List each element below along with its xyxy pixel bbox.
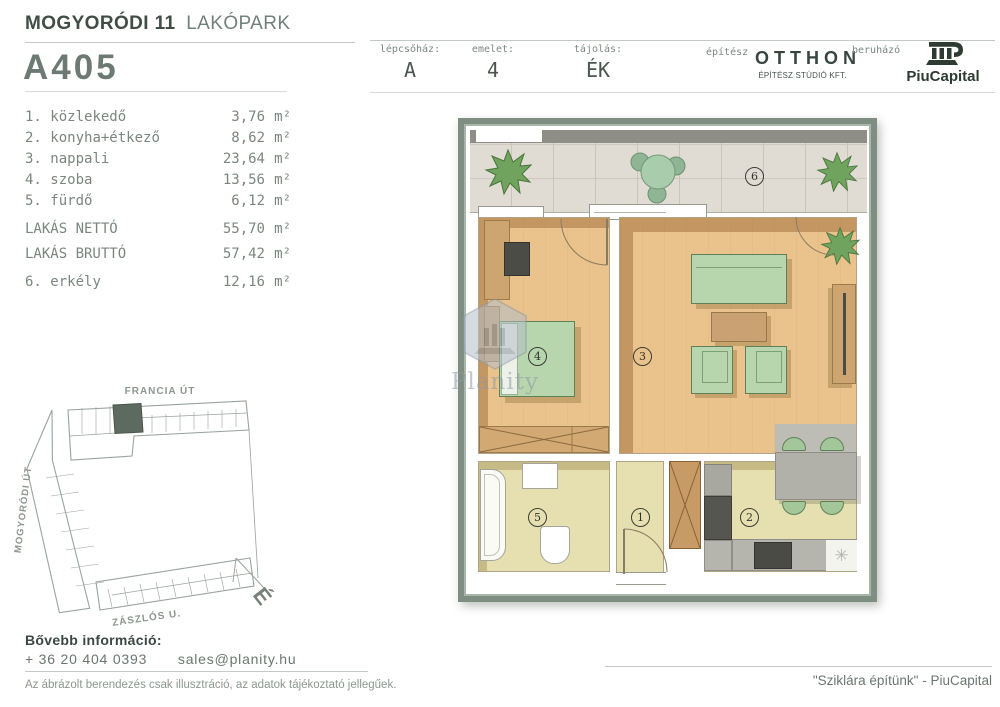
divider xyxy=(25,671,368,672)
sink xyxy=(522,463,558,489)
room-num: 3. xyxy=(25,151,42,167)
developer-label: beruházó xyxy=(852,45,900,56)
floor-value: 4 xyxy=(458,58,528,82)
contact-line: + 36 20 404 0393 sales@planity.hu xyxy=(25,651,296,667)
net-area-row: LAKÁS NETTÓ 55,70 m² xyxy=(25,219,291,240)
staircase-label: lépcsőház: xyxy=(375,44,445,55)
plant-icon xyxy=(484,148,532,196)
info-staircase: lépcsőház: A xyxy=(375,44,445,82)
architect-label: építész xyxy=(706,47,748,58)
room-unit: m² xyxy=(265,128,291,149)
room-badge-kitchen: 2 xyxy=(740,508,759,527)
room-area: 23,64 xyxy=(209,149,265,170)
wardrobe xyxy=(479,426,609,453)
plant-icon xyxy=(820,226,860,266)
site-plan: FRANCIA ÚT MOGYORÓDI ÚT ZÁSZLÓS U. É xyxy=(12,380,290,628)
architect-name: OTTHON xyxy=(755,48,850,69)
room-name: szoba xyxy=(50,172,92,188)
project-type: LAKÓPARK xyxy=(186,13,290,34)
watermark-text: Planity xyxy=(440,369,550,395)
street-label-top: FRANCIA ÚT xyxy=(125,384,196,397)
room-row: 4. szoba 13,56 m² xyxy=(25,170,291,191)
stove xyxy=(754,542,792,569)
room-badge-hall: 1 xyxy=(631,508,650,527)
balcony-name: erkély xyxy=(50,274,101,290)
room-unit: m² xyxy=(265,191,291,212)
divider xyxy=(25,91,287,92)
divider xyxy=(605,666,992,667)
room-name: közlekedő xyxy=(50,109,126,125)
bathtub xyxy=(480,469,506,561)
architect-subtitle: ÉPÍTÉSZ STÚDIÓ KFT. xyxy=(750,71,855,80)
contact-phone: + 36 20 404 0393 xyxy=(25,651,147,667)
planity-logo-icon xyxy=(462,298,528,370)
balcony-unit: m² xyxy=(265,272,291,293)
staircase-value: A xyxy=(375,58,445,82)
room-row: 3. nappali 23,64 m² xyxy=(25,149,291,170)
room-row: 2. konyha+étkező 8,62 m² xyxy=(25,128,291,149)
highlighted-unit xyxy=(113,404,143,434)
gross-area: 57,42 xyxy=(209,244,265,265)
divider xyxy=(25,42,355,43)
street-label-left: MOGYORÓDI ÚT xyxy=(12,465,34,553)
net-label: LAKÁS NETTÓ xyxy=(25,219,209,240)
balcony-railing-gap xyxy=(476,128,542,142)
company-slogan: "Sziklára építünk" - PiuCapital xyxy=(605,673,992,688)
divider xyxy=(370,92,995,93)
net-unit: m² xyxy=(265,219,291,240)
tv-icon xyxy=(504,242,530,276)
kitchen-counter xyxy=(704,464,732,496)
sofa xyxy=(691,254,787,304)
gross-unit: m² xyxy=(265,244,291,265)
contact-email: sales@planity.hu xyxy=(178,651,297,667)
room-num: 1. xyxy=(25,109,42,125)
toilet xyxy=(540,526,570,564)
room-row: 1. közlekedő 3,76 m² xyxy=(25,107,291,128)
net-area: 55,70 xyxy=(209,219,265,240)
room-area: 13,56 xyxy=(209,170,265,191)
room-num: 2. xyxy=(25,130,42,146)
room-area: 3,76 xyxy=(209,107,265,128)
balcony-table-icon xyxy=(622,144,694,206)
project-name: MOGYORÓDI 11 xyxy=(25,13,176,34)
floor-label: emelet: xyxy=(458,44,528,55)
hall-closet xyxy=(669,461,701,549)
kitchen-counter xyxy=(704,540,732,571)
orientation-label: tájolás: xyxy=(558,44,638,55)
room-num: 4. xyxy=(25,172,42,188)
balcony-row: 6. erkély 12,16 m² xyxy=(25,272,291,293)
piucapital-logo-icon xyxy=(922,40,966,68)
gross-area-row: LAKÁS BRUTTÓ 57,42 m² xyxy=(25,244,291,265)
plant-icon xyxy=(816,151,858,193)
room-badge-bath: 5 xyxy=(528,508,547,527)
room-name: nappali xyxy=(50,151,109,167)
info-floor: emelet: 4 xyxy=(458,44,528,82)
balcony-num: 6. xyxy=(25,274,42,290)
developer-name: PiuCapital xyxy=(893,68,993,85)
armchair xyxy=(745,346,787,394)
street-label-bottom: ZÁSZLÓS U. xyxy=(111,606,182,628)
room-unit: m² xyxy=(265,107,291,128)
divider xyxy=(370,40,995,41)
planity-watermark: Planity xyxy=(440,298,550,400)
dining-table xyxy=(775,452,857,500)
unit-id: A405 xyxy=(23,48,119,88)
room-list: 1. közlekedő 3,76 m² 2. konyha+étkező 8,… xyxy=(25,107,291,293)
room-area: 6,12 xyxy=(209,191,265,212)
media-cabinet xyxy=(832,284,856,384)
info-orientation: tájolás: ÉK xyxy=(558,44,638,82)
project-title: MOGYORÓDI 11 LAKÓPARK xyxy=(25,13,290,35)
disclaimer-text: Az ábrázolt berendezés csak illusztráció… xyxy=(25,679,396,691)
orientation-value: ÉK xyxy=(558,58,638,82)
apartment-datasheet: MOGYORÓDI 11 LAKÓPARK A405 lépcsőház: A … xyxy=(0,0,1000,707)
room-row: 5. fürdő 6,12 m² xyxy=(25,191,291,212)
room-unit: m² xyxy=(265,149,291,170)
room-badge-balcony: 6 xyxy=(745,167,764,186)
room-unit: m² xyxy=(265,170,291,191)
lamp-symbol: ✳ xyxy=(826,540,857,571)
entrance-door-sill xyxy=(616,572,666,585)
room-name: konyha+étkező xyxy=(50,130,160,146)
armchair xyxy=(691,346,733,394)
room-num: 5. xyxy=(25,193,42,209)
room-badge-living: 3 xyxy=(633,347,652,366)
contact-heading: Bővebb információ: xyxy=(25,632,162,648)
refrigerator xyxy=(704,496,732,540)
room-name: fürdő xyxy=(50,193,92,209)
room-area: 8,62 xyxy=(209,128,265,149)
gross-label: LAKÁS BRUTTÓ xyxy=(25,244,209,265)
building-outline xyxy=(19,401,258,614)
balcony-area: 12,16 xyxy=(209,272,265,293)
coffee-table xyxy=(711,312,767,342)
